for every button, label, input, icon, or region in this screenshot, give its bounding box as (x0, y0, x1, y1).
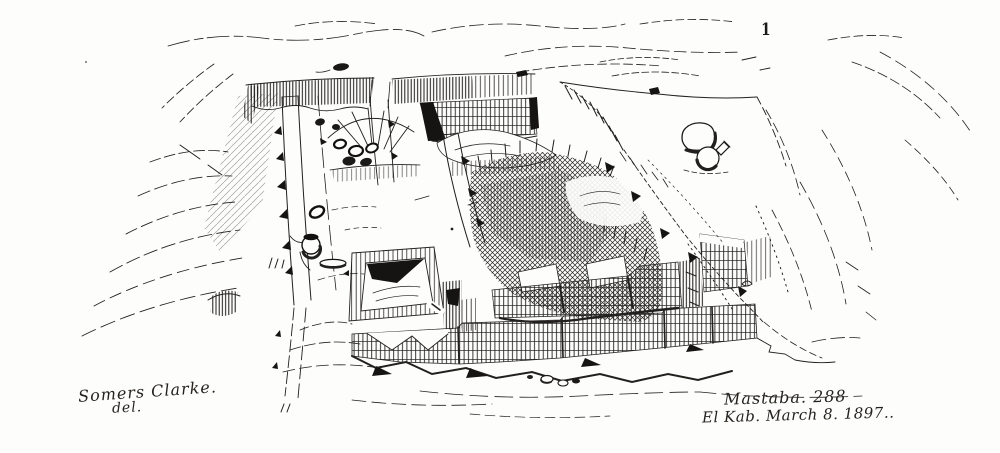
surface-vessels (682, 123, 730, 174)
ne-corner-hatching (560, 82, 757, 150)
scanned-page: Somers Clarke. del. Mastaba. 288 El Kab.… (0, 0, 1000, 453)
artist-credit: del. (112, 399, 143, 417)
right-outer-slope (742, 97, 876, 358)
foreground-stones (527, 375, 580, 386)
pot-cluster (333, 139, 379, 168)
shaft-pit (343, 247, 446, 321)
plate-number: 1 (761, 20, 770, 40)
pot-and-dish (300, 234, 346, 270)
oval-ring-pot (308, 204, 326, 220)
